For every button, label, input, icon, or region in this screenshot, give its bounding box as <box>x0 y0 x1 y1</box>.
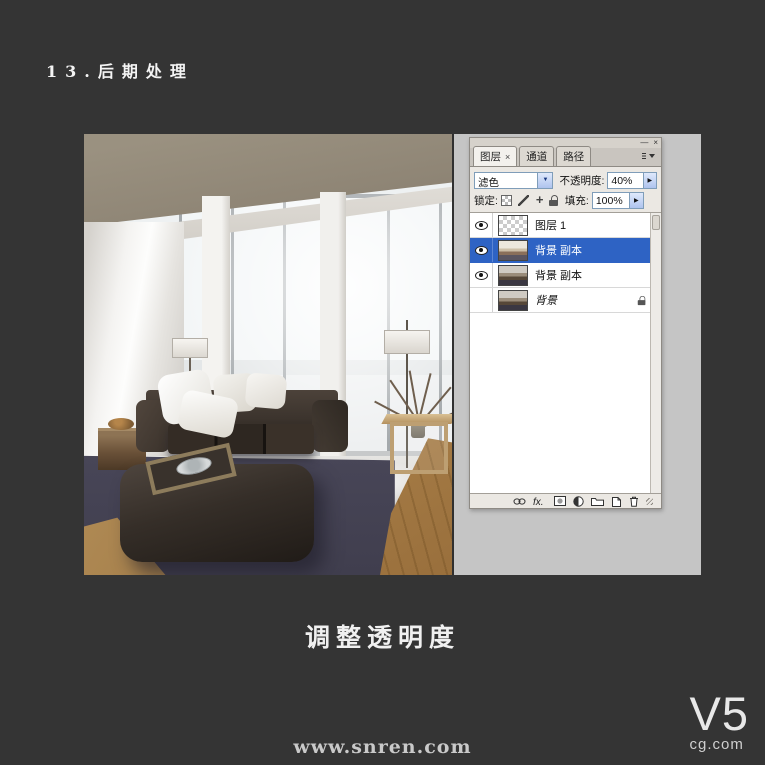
layer-thumbnail <box>498 240 528 261</box>
fill-slider-icon[interactable] <box>630 192 644 209</box>
fill-label: 填充: <box>565 193 589 208</box>
adjustment-layer-icon[interactable] <box>573 496 584 507</box>
layer-row[interactable]: 图层 1 <box>470 213 661 238</box>
fruit-bowl <box>108 418 134 430</box>
tutorial-slide: 13.后期处理 <box>0 0 765 765</box>
layers-list: 图层 1 背景 副本 背景 副本 背景 <box>470 213 661 494</box>
layer-thumbnail <box>498 290 528 311</box>
pillow <box>245 372 288 409</box>
sofa-arm <box>312 400 348 452</box>
close-icon[interactable]: × <box>653 139 658 147</box>
layer-mask-icon[interactable] <box>554 496 566 506</box>
blend-mode-value: 滤色 <box>475 173 537 188</box>
layer-thumbnail <box>498 265 528 286</box>
logo-cgcom: cg.com <box>690 737 750 752</box>
opacity-label: 不透明度: <box>559 173 604 188</box>
lock-label: 锁定: <box>474 193 498 208</box>
panel-tab-bar: 图层× 通道 路径 <box>470 148 661 167</box>
site-logo: V5 cg.com <box>690 690 750 752</box>
opacity-input[interactable]: 40% <box>607 172 643 189</box>
lock-icon <box>638 295 647 304</box>
tab-channels[interactable]: 通道 <box>519 146 554 166</box>
layers-panel: — × 图层× 通道 路径 <box>469 137 662 509</box>
lock-position-icon[interactable] <box>535 195 546 206</box>
watermark: www.snren.com <box>0 736 765 758</box>
tab-close-icon[interactable]: × <box>505 152 510 162</box>
svg-text:fx.: fx. <box>533 497 544 507</box>
layer-row-background[interactable]: 背景 <box>470 288 661 313</box>
visibility-toggle[interactable] <box>470 288 493 312</box>
logo-v5: V5 <box>690 690 750 737</box>
tab-paths[interactable]: 路径 <box>556 146 591 166</box>
panel-footer: fx. <box>470 494 661 508</box>
tab-layers[interactable]: 图层× <box>473 146 517 166</box>
layer-style-icon[interactable]: fx. <box>533 496 547 507</box>
panel-controls: 滤色 不透明度: 40% 锁定: 填充: 100% <box>470 167 661 213</box>
layer-row-selected[interactable]: 背景 副本 <box>470 238 661 263</box>
table-lamp-shade <box>172 338 208 358</box>
opacity-slider-icon[interactable] <box>644 172 657 189</box>
visibility-toggle[interactable] <box>470 213 493 237</box>
eye-icon <box>475 271 488 280</box>
minimize-icon[interactable]: — <box>640 139 648 147</box>
visibility-toggle[interactable] <box>470 238 493 262</box>
blend-mode-select[interactable]: 滤色 <box>474 172 553 189</box>
lock-all-icon[interactable] <box>549 195 559 206</box>
layer-row[interactable]: 背景 副本 <box>470 263 661 288</box>
layer-group-icon[interactable] <box>591 496 604 506</box>
eye-icon <box>475 246 488 255</box>
chevron-down-icon[interactable] <box>537 173 552 188</box>
lock-pixels-icon[interactable] <box>518 195 529 206</box>
link-icon[interactable] <box>513 497 526 506</box>
eye-icon <box>475 221 488 230</box>
page-title: 13.后期处理 <box>46 58 194 82</box>
glass-table <box>390 422 448 474</box>
fill-input[interactable]: 100% <box>592 192 630 209</box>
scrollbar[interactable] <box>650 213 661 493</box>
layer-thumbnail <box>498 215 528 236</box>
scrollbar-thumb[interactable] <box>652 215 660 230</box>
caption: 调整透明度 <box>0 618 765 654</box>
delete-layer-icon[interactable] <box>629 496 639 507</box>
resize-grip-icon[interactable] <box>646 498 653 505</box>
new-layer-icon[interactable] <box>611 496 622 507</box>
floor-lamp-shade <box>384 330 430 354</box>
visibility-toggle[interactable] <box>470 263 493 287</box>
photoshop-screenshot: — × 图层× 通道 路径 <box>84 134 701 575</box>
lock-transparency-icon[interactable] <box>501 195 512 206</box>
panel-menu-icon[interactable] <box>641 152 657 161</box>
document-canvas[interactable] <box>84 134 454 575</box>
